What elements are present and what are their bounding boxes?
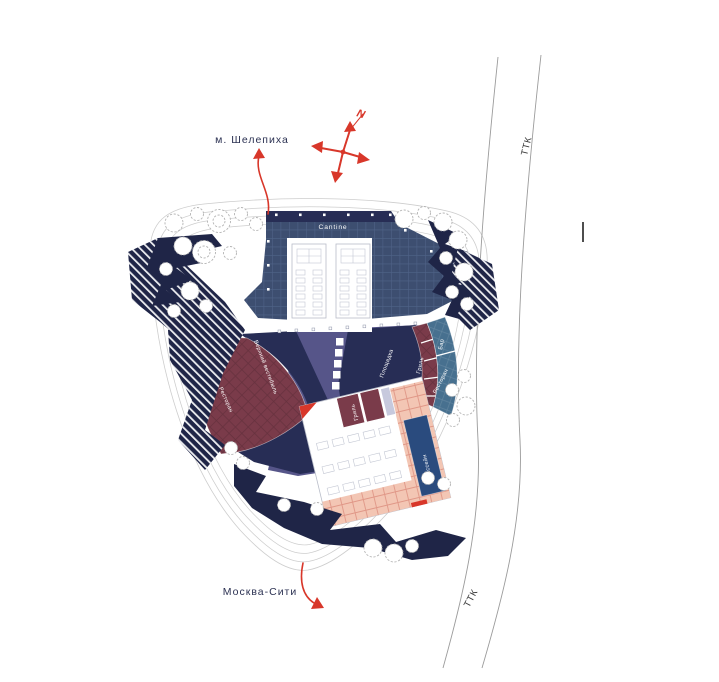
north-label: N [355, 107, 367, 121]
north-compass: N [311, 107, 370, 183]
cantine-label: Cantine [318, 224, 347, 231]
cantine-building: Cantine [244, 211, 460, 332]
metro-station-label: м. Шелепиха [215, 134, 289, 146]
ttk-road [443, 55, 583, 668]
moscow-city-label: Москва-Сити [223, 586, 297, 598]
site-plan-canvas: Cantine Гриль Бассейн [0, 0, 719, 682]
site-plan-page: Cantine Гриль Бассейн [0, 0, 719, 682]
ttk-label-bottom: ТТК [462, 588, 481, 610]
ttk-label-top: ТТК [519, 136, 534, 157]
cantine-core-left [292, 244, 326, 318]
cantine-core-right [336, 244, 370, 318]
cantine-roof-strip [266, 211, 397, 222]
metro-arrow [253, 148, 269, 214]
